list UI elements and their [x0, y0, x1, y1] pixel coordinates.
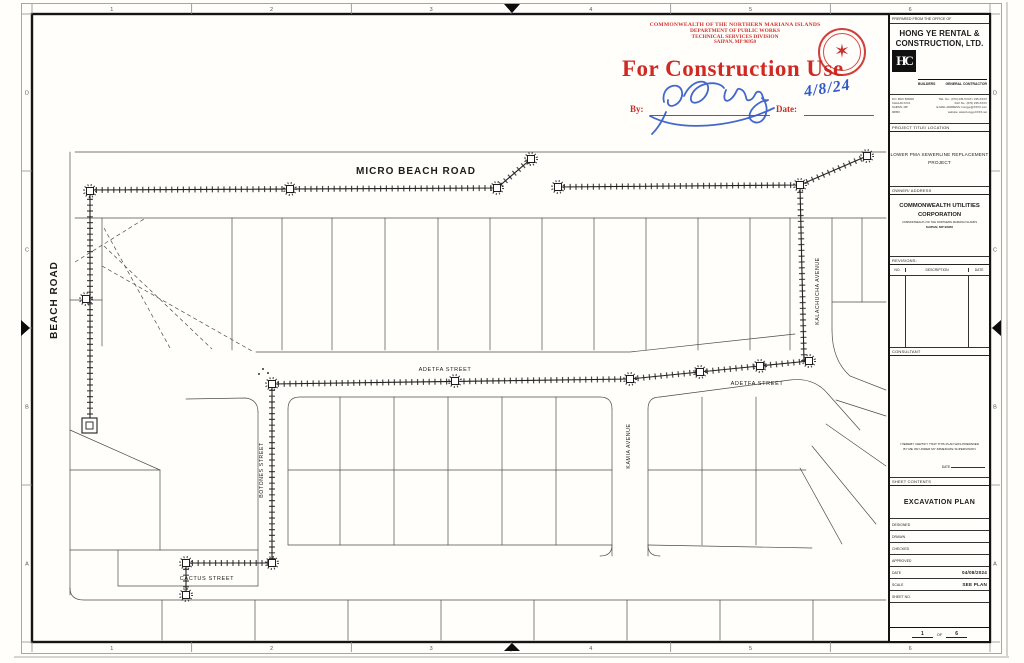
info-row-checked: CHECKED	[890, 543, 989, 555]
zone-row-label: D	[993, 91, 997, 97]
zone-row-label: C	[25, 248, 29, 254]
zone-col-label: 3	[430, 646, 433, 652]
owner-name-line2: CORPORATION	[890, 211, 989, 220]
company-address: P.O. BOX 500640 CHALAN KIYA SAIPAN, MP 9…	[890, 95, 989, 124]
revisions-label: REVISIONS:	[890, 257, 989, 265]
revisions-header: NO. DESCRIPTION DATE	[890, 265, 989, 276]
certification-date-blank	[951, 467, 985, 468]
consultant-box: I HEREBY CERTIFY THAT THIS PLAN WAS PREP…	[890, 356, 989, 478]
zone-col-label: 4	[589, 7, 592, 13]
company-address-left: P.O. BOX 500640 CHALAN KIYA SAIPAN, MP 9…	[892, 97, 924, 121]
kalachucha-avenue-label: KALACHUCHA AVENUE	[815, 257, 821, 324]
rev-col-no: NO.	[890, 268, 906, 272]
sheet-of-row: 1 OF 6	[890, 628, 989, 641]
sheet-total-number: 6	[946, 631, 967, 638]
stamp-agency-text: COMMONWEALTH OF THE NORTHERN MARIANA ISL…	[628, 22, 842, 45]
zone-row-label: A	[25, 562, 29, 568]
sheet-contents-label: SHEET CONTENTS	[890, 478, 989, 486]
zone-col-label: 6	[909, 646, 912, 652]
zone-col-label: 4	[589, 646, 592, 652]
date-signature-line	[804, 115, 874, 116]
revisions-empty-rows	[890, 276, 989, 347]
sheet-of-label: OF	[937, 632, 943, 637]
adetfa-street-west-label: ADETFA STREET	[419, 367, 472, 373]
zone-row-label: B	[993, 405, 997, 411]
zone-col-label: 5	[749, 7, 752, 13]
beach-road-label: BEACH ROAD	[49, 261, 60, 339]
project-title-line1: LOWER PMA SEWERLINE REPLACEMENT	[890, 151, 988, 159]
hc-logo: HC	[892, 50, 916, 72]
sheet-title: EXCAVATION PLAN	[890, 486, 989, 519]
kamia-avenue-label: KAMIA AVENUE	[626, 423, 632, 468]
zone-col-label: 1	[110, 7, 113, 13]
company-name-line1: HONG YE RENTAL &	[892, 29, 987, 39]
dpw-approval-stamp: COMMONWEALTH OF THE NORTHERN MARIANA ISL…	[622, 20, 880, 144]
zone-col-label: 1	[110, 646, 113, 652]
builders-label: BUILDERS	[918, 82, 935, 86]
sheet-current-number: 1	[912, 631, 933, 638]
owner-box: COMMONWEALTH UTILITIES CORPORATION COMMO…	[890, 195, 989, 257]
info-row-sheet-no: SHEET NO.	[890, 591, 989, 603]
zone-row-label: B	[25, 405, 29, 411]
project-title-line2: PROJECT	[890, 159, 988, 167]
zone-col-label: 3	[430, 7, 433, 13]
company-address-right: TEL. No.: (670) 235-XXXX / 235-XXXX FAX …	[924, 97, 987, 121]
adetfa-street-east-label: ADETFA STREET	[731, 381, 784, 387]
rev-col-date: DATE	[968, 268, 989, 272]
certification-text: I HEREBY CERTIFY THAT THIS PLAN WAS PREP…	[892, 442, 987, 453]
revisions-table: NO. DESCRIPTION DATE	[890, 265, 989, 348]
zone-row-label: A	[993, 562, 997, 568]
project-title-box: LOWER PMA SEWERLINE REPLACEMENT PROJECT	[890, 132, 989, 187]
rev-col-description: DESCRIPTION	[906, 268, 968, 272]
drawing-sheet: { "page": { "paper_color": "#fffefb", "l…	[0, 0, 1024, 663]
general-contractor-label: GENERAL CONTRACTOR	[945, 82, 987, 86]
info-row-designed: DESIGNED	[890, 519, 989, 531]
consultant-label: CONSULTANT	[890, 348, 989, 356]
zone-col-label: 2	[270, 7, 273, 13]
zone-row-label: C	[993, 248, 997, 254]
owner-address-line: COMMONWEALTH OF THE NORTHERN MARIANA ISL…	[890, 221, 989, 224]
terminal-structure-icon	[82, 418, 97, 433]
owner-address-label: OWNER/ ADDRESS	[890, 187, 989, 195]
botones-street-label: BOTONES STREET	[259, 442, 265, 498]
company-name: HONG YE RENTAL & CONSTRUCTION, LTD.	[892, 29, 987, 49]
zone-row-label: D	[25, 91, 29, 97]
sheet-number-box	[890, 603, 989, 628]
micro-beach-road-label: MICRO BEACH ROAD	[356, 166, 476, 177]
prepared-by-label: PREPARED FROM THE OFFICE OF	[890, 15, 989, 24]
info-row-drawn: DRAWN	[890, 531, 989, 543]
project-title-label: PROJECT TITLE/ LOCATION	[890, 124, 989, 132]
info-row-scale: SCALE SEE PLAN	[890, 579, 989, 591]
info-row-date: DATE 04/08/2024	[890, 567, 989, 579]
zone-col-label: 2	[270, 646, 273, 652]
company-name-line2: CONSTRUCTION, LTD.	[892, 39, 987, 49]
info-row-approved: APPROVED	[890, 555, 989, 567]
handwritten-signature	[628, 68, 808, 140]
company-header: HONG YE RENTAL & CONSTRUCTION, LTD. HC B…	[890, 24, 989, 95]
company-tagline: BUILDERS GENERAL CONTRACTOR	[918, 79, 987, 86]
owner-name-line1: COMMONWEALTH UTILITIES	[890, 202, 989, 211]
title-block: PREPARED FROM THE OFFICE OF HONG YE RENT…	[888, 13, 991, 643]
owner-city-line: SAIPAN, MP 96950	[890, 225, 989, 229]
zone-col-label: 5	[749, 646, 752, 652]
cactus-street-label: CACTUS STREET	[180, 576, 234, 582]
certification-date: DATE	[942, 465, 985, 469]
